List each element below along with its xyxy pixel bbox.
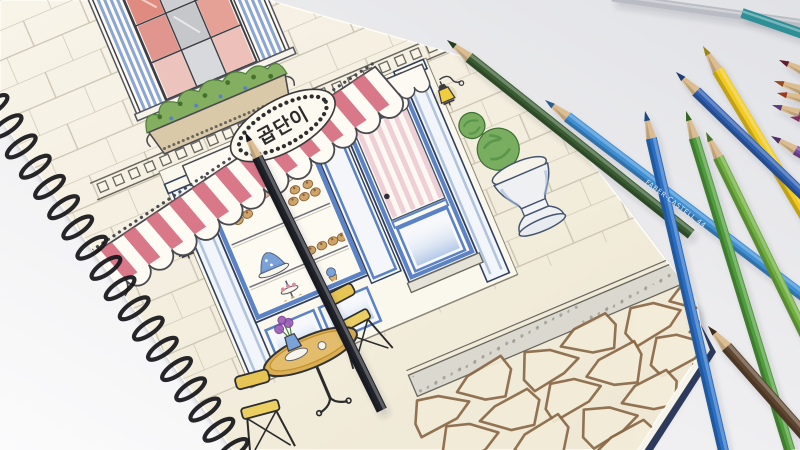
scene-canvas: 드루와 [0, 0, 800, 450]
photo-scene: 드루와 [0, 0, 800, 450]
